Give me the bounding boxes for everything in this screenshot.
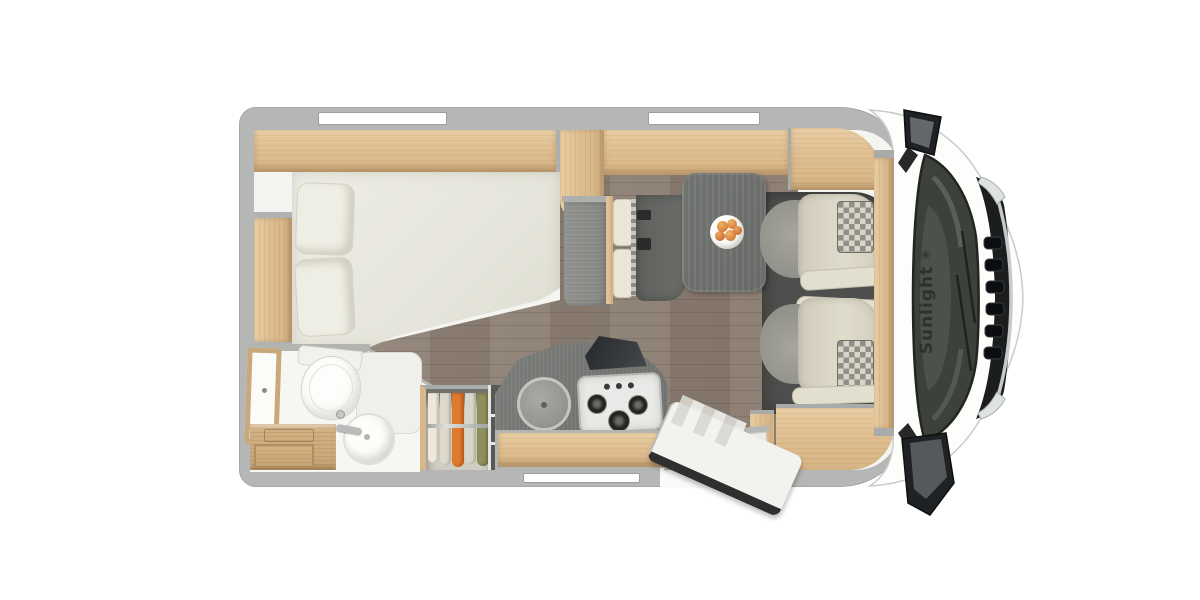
- brand-logo-text: Sunlight: [917, 266, 937, 355]
- garment-3: [452, 393, 464, 467]
- overhead-cabinet-kitchen-column: [560, 130, 604, 200]
- seat-belt-buckle-1: [637, 210, 651, 220]
- wardrobe-rail: [426, 424, 492, 428]
- kitchen-drawer-front: [495, 430, 668, 470]
- garment-2: [440, 393, 451, 465]
- stove-burner-3: [628, 395, 648, 415]
- tall-unit-wood-edge: [606, 196, 613, 304]
- stove-knobs: [604, 382, 636, 392]
- overhead-cabinet-dinette: [604, 130, 788, 175]
- garment-4: [465, 393, 476, 464]
- bed-pillow-top: [295, 182, 355, 256]
- dash-shelf-cap-bottom: [874, 428, 894, 436]
- garment-1: [428, 393, 439, 463]
- toilet-flush-button: [336, 410, 345, 419]
- service-hatch: [523, 473, 640, 483]
- dash-shelf-cap-top: [874, 150, 894, 158]
- stove-burner-2: [608, 410, 630, 432]
- dash-wood-shelf: [874, 158, 894, 428]
- bench-backrest-cushion-2: [613, 249, 633, 298]
- washbasin-drain: [364, 434, 370, 440]
- brand-mark-icon: ✳: [919, 249, 935, 261]
- roof-window-front: [648, 112, 760, 125]
- kitchen-tall-unit: [564, 202, 610, 306]
- stove-burner-1: [587, 394, 607, 414]
- fruit-3: [715, 231, 725, 241]
- mirror-hinge: [262, 388, 267, 393]
- rear-shelf: [254, 218, 292, 342]
- vanity-sink-inset: [264, 429, 314, 442]
- roof-window-rear: [318, 112, 447, 125]
- seat-belt-buckle-2: [637, 238, 651, 250]
- fruit-5: [733, 226, 742, 235]
- overhead-cabinet-rear: [254, 130, 556, 172]
- side-mirror-bottom: [898, 423, 954, 515]
- vanity-drawer: [254, 444, 314, 468]
- bed-pillow-bottom: [294, 257, 356, 338]
- motorhome-floorplan: ✳ Sunlight: [0, 0, 1200, 600]
- bench-backrest-cushion-1: [613, 199, 633, 246]
- sink-drain: [541, 402, 547, 408]
